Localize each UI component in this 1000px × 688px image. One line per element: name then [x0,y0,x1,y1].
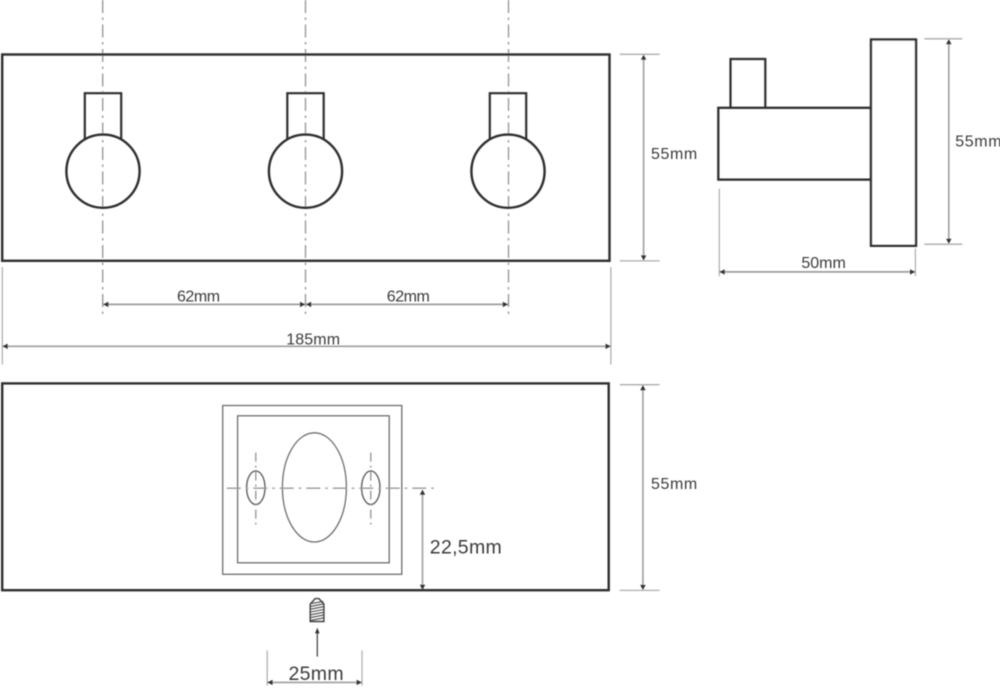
svg-text:50mm: 50mm [801,255,845,272]
svg-text:62mm: 62mm [387,289,430,306]
svg-text:185mm: 185mm [286,331,340,348]
svg-text:55mm: 55mm [651,146,698,163]
svg-text:55mm: 55mm [651,476,698,493]
svg-text:25mm: 25mm [289,663,344,685]
svg-text:55mm: 55mm [955,133,1000,150]
svg-text:22,5mm: 22,5mm [430,536,502,558]
svg-text:62mm: 62mm [177,289,220,306]
